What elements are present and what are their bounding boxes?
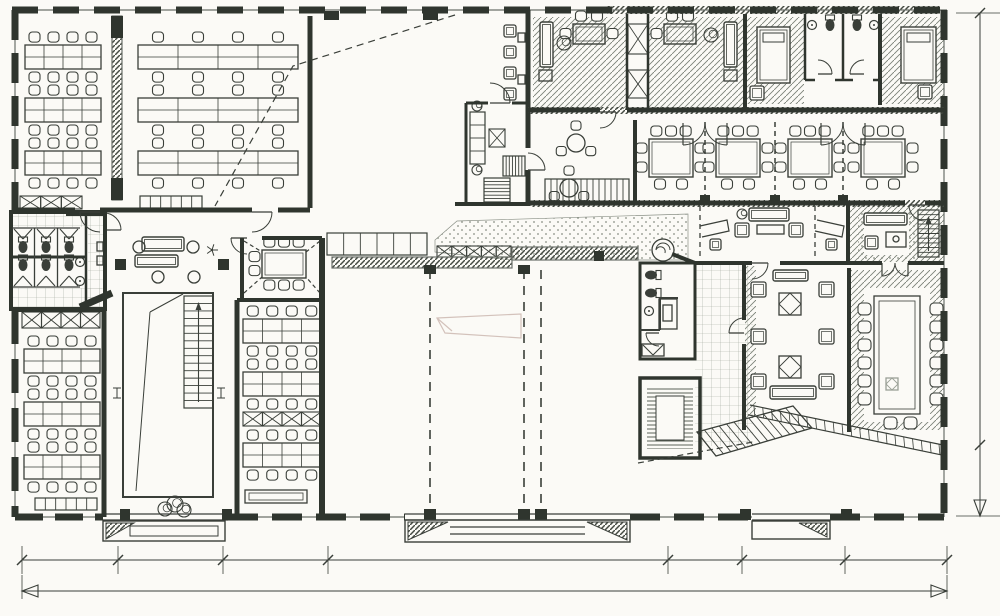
south-wall	[630, 514, 752, 521]
lounge-sofa	[135, 255, 178, 267]
classroom-b-desks	[138, 32, 298, 188]
toilet	[853, 15, 862, 31]
rt	[152, 271, 164, 283]
ac	[819, 374, 834, 389]
classroom-d-desks-2	[243, 430, 321, 480]
vee	[37, 276, 55, 286]
bed	[901, 27, 936, 83]
plant	[737, 209, 747, 219]
table	[489, 129, 505, 147]
pier	[838, 195, 848, 203]
desk	[700, 220, 729, 237]
sink	[645, 307, 654, 316]
cabinet-band	[243, 412, 321, 426]
ib	[217, 388, 225, 398]
door-swing	[818, 60, 832, 74]
wc	[645, 289, 661, 298]
pier	[324, 11, 339, 20]
sofa	[773, 270, 808, 281]
shelf	[470, 112, 485, 164]
ph2	[512, 247, 638, 260]
pier	[700, 195, 710, 203]
tri	[587, 522, 627, 540]
pier	[423, 11, 438, 20]
rect	[656, 396, 684, 440]
bed	[757, 27, 790, 83]
pier	[518, 265, 530, 274]
duct	[659, 299, 677, 329]
sofa	[770, 386, 816, 399]
window-bay	[245, 490, 307, 503]
card-table	[779, 293, 801, 315]
pier	[518, 509, 530, 520]
south-wall	[228, 514, 405, 521]
armchair	[918, 85, 932, 99]
stair	[484, 178, 510, 202]
ac	[504, 25, 516, 37]
ph2	[332, 257, 512, 268]
office-sofa	[540, 22, 553, 67]
seminar-table	[636, 126, 706, 189]
rt	[187, 241, 199, 253]
ac	[789, 223, 803, 237]
ac	[826, 239, 837, 250]
door-swing	[528, 153, 545, 170]
south-wall	[15, 514, 103, 521]
line	[437, 318, 452, 331]
floor-plan-sheet	[0, 0, 1000, 616]
pier	[424, 509, 436, 520]
closet	[628, 24, 648, 54]
pier	[535, 509, 547, 520]
wc	[19, 237, 28, 253]
stair	[503, 156, 525, 176]
ac	[504, 67, 516, 79]
pier	[120, 509, 130, 520]
plant	[472, 165, 482, 175]
radiator	[140, 196, 202, 208]
pier	[770, 195, 780, 203]
sink	[76, 258, 85, 267]
conference-table	[249, 237, 306, 290]
rect	[518, 33, 525, 42]
tri	[408, 522, 448, 540]
armchair	[750, 86, 764, 100]
main-stair	[184, 296, 213, 408]
sofa	[864, 213, 907, 225]
pier	[222, 509, 232, 520]
sink	[870, 21, 879, 30]
line	[136, 312, 150, 491]
seminar-table	[848, 126, 918, 189]
wc	[42, 237, 51, 253]
classroom-a-desks	[25, 32, 101, 188]
pier	[115, 259, 126, 270]
ib	[113, 388, 121, 398]
desk	[815, 220, 844, 237]
cabinet-band	[20, 196, 82, 209]
lounge-sofa	[142, 237, 184, 251]
stair-void	[123, 293, 213, 497]
door-swing	[600, 112, 616, 128]
door-swing	[231, 238, 247, 254]
west-wall	[12, 10, 19, 210]
north-wall	[12, 7, 947, 14]
door-swing	[252, 212, 272, 232]
coffee-table	[757, 225, 784, 234]
pencil-sketch	[437, 314, 521, 338]
sink	[808, 21, 817, 30]
rect	[663, 305, 672, 321]
line	[244, 277, 262, 293]
pier	[424, 265, 436, 274]
ac	[710, 239, 721, 250]
layer-floors	[12, 17, 944, 449]
closet	[628, 70, 648, 98]
floor-plan-drawing	[0, 0, 1000, 616]
lounge-sofa	[749, 208, 789, 221]
card-table	[779, 356, 801, 378]
ac	[819, 282, 834, 297]
vee	[643, 345, 663, 355]
seminar-table	[703, 126, 773, 189]
ac	[751, 282, 766, 297]
roof-line	[215, 15, 455, 206]
pier	[111, 178, 123, 200]
rect	[642, 344, 664, 356]
line	[244, 241, 262, 252]
ac	[751, 374, 766, 389]
vee	[14, 276, 32, 286]
ac	[735, 223, 749, 237]
wc	[645, 271, 661, 280]
line	[306, 277, 320, 293]
toilet	[826, 15, 835, 31]
ac	[504, 46, 516, 58]
pier	[740, 509, 751, 520]
classroom-c-desks	[24, 336, 100, 492]
line	[150, 294, 183, 312]
rect	[130, 526, 218, 536]
line	[306, 241, 320, 252]
pier	[594, 251, 604, 261]
plant	[177, 503, 191, 517]
pier	[111, 16, 123, 38]
partition-wall	[112, 16, 122, 200]
rect	[249, 493, 303, 500]
pier	[218, 259, 229, 270]
office-sofa	[724, 22, 737, 67]
ac	[504, 88, 516, 100]
fan	[207, 244, 218, 255]
lockers	[327, 233, 427, 255]
tri	[799, 523, 827, 537]
seminar-table	[775, 126, 845, 189]
radiator	[35, 498, 97, 510]
ac	[819, 329, 834, 344]
cafe-table	[556, 121, 595, 156]
spiral-stair	[652, 239, 674, 261]
west-wall	[12, 310, 19, 517]
door-swing	[850, 60, 864, 74]
ac	[865, 236, 878, 249]
classroom-d-desks	[243, 306, 321, 409]
rt	[188, 271, 200, 283]
pier	[841, 509, 852, 520]
rect	[518, 75, 525, 84]
wc	[65, 237, 74, 253]
cabinet-band	[22, 312, 100, 328]
ac	[751, 329, 766, 344]
